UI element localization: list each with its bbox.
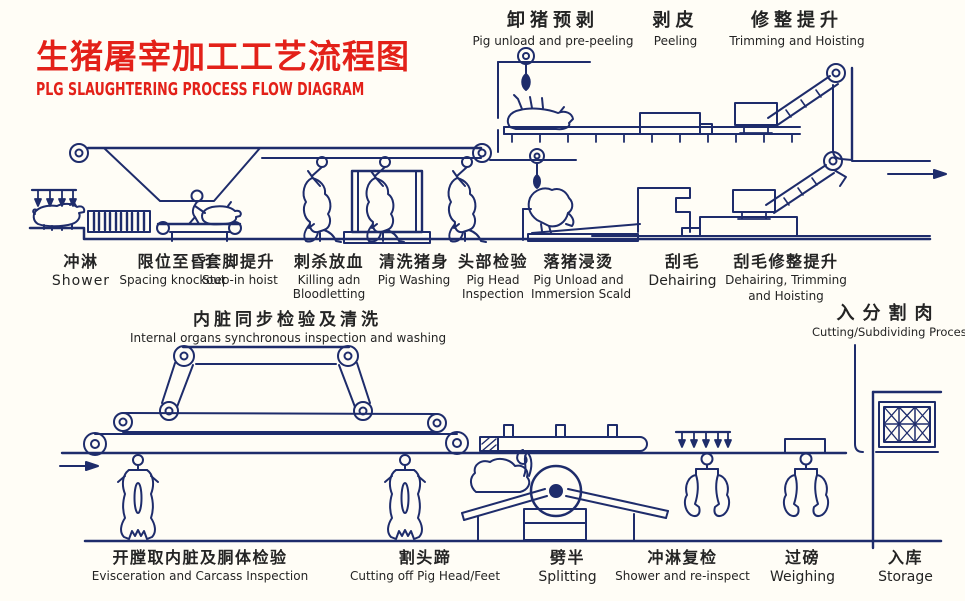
label-en: Cutting off Pig Head/Feet (330, 570, 520, 583)
label-head-inspection: 头部检验 Pig Head Inspection (448, 253, 538, 301)
hanging-pig-3 (449, 157, 486, 242)
label-pig-washing: 清洗猪身 Pig Washing (368, 253, 460, 288)
label-zh: 过磅 (745, 549, 860, 567)
scalding-tank (528, 188, 690, 241)
label-peeling: 剥皮 Peeling (628, 11, 723, 48)
label-zh: 落猪浸烫 (531, 253, 626, 271)
cutting-room-entry-line (855, 345, 863, 452)
title-chinese: 生猪屠宰加工工艺流程图 (36, 40, 492, 75)
eviscerated-carcass-2 (385, 455, 425, 539)
label-zh: 劈半 (510, 549, 625, 567)
hanging-pig-2 (367, 157, 404, 242)
hoisting-conveyor-lower (733, 152, 846, 219)
label-zh: 清洗猪身 (368, 253, 460, 271)
label-zh: 剥皮 (628, 11, 723, 32)
label-zh: 卸猪预剥 (448, 11, 658, 32)
label-zh: 头部检验 (448, 253, 538, 271)
hanging-pig-1 (304, 157, 341, 242)
label-en: Evisceration and Carcass Inspection (80, 570, 320, 583)
diagram-title: 生猪屠宰加工工艺流程图 PLG SLAUGHTERING PROCESS FLO… (36, 40, 492, 100)
bleeding-frame (344, 171, 430, 243)
label-zh: 刺杀放血 (283, 253, 375, 271)
pig-on-hoist-table (202, 202, 241, 224)
label-dehairing-trimming-hoisting: 刮毛修整提升 Dehairing, Trimming and Hoisting (725, 253, 847, 303)
label-splitting: 劈半 Splitting (510, 549, 625, 586)
process-flow-diagram: 生猪屠宰加工工艺流程图 PLG SLAUGHTERING PROCESS FLO… (0, 0, 965, 601)
peeling-machine-box (640, 113, 712, 134)
label-trimming-hoisting: 修整提升 Trimming and Hoisting (712, 11, 882, 48)
label-cutting-subdividing: 入分割肉 Cutting/Subdividing Process (812, 304, 965, 339)
label-immersion-scald: 落猪浸烫 Pig Unload and Immersion Scald (531, 253, 626, 301)
split-carcass-pair-1 (685, 454, 729, 517)
unload-hook (518, 48, 534, 90)
label-en: Trimming and Hoisting (712, 35, 882, 48)
label-en: Pig Washing (368, 274, 460, 287)
label-step-in-hoist: 套脚提升 Step-in hoist (192, 253, 288, 288)
split-carcass-pair-2 (784, 454, 828, 517)
label-en: Pig unload and pre-peeling (448, 35, 658, 48)
storage-room (873, 392, 941, 548)
label-en: Pig Unload and (531, 274, 626, 287)
label-zh: 入分割肉 (812, 304, 965, 325)
pig-on-pre-peel-table (508, 95, 573, 129)
label-shower: 冲淋 Shower (42, 253, 120, 290)
label-dehairing: 刮毛 Dehairing (640, 253, 725, 290)
label-organ-inspection: 内脏同步检验及清洗 Internal organs synchronous in… (130, 311, 445, 345)
label-en: Pig Head (448, 274, 538, 287)
label-cutting-head-feet: 割头蹄 Cutting off Pig Head/Feet (330, 549, 520, 584)
reinspect-shower-sprayer (676, 432, 731, 447)
label-zh: 割头蹄 (330, 549, 520, 567)
label-zh: 刮毛修整提升 (725, 253, 847, 271)
scald-hook (530, 149, 544, 188)
label-en2: Bloodletting (283, 288, 375, 301)
restrainer-pen-fence (88, 211, 150, 232)
label-zh: 修整提升 (712, 11, 882, 32)
label-zh: 冲淋 (42, 253, 120, 271)
head-feet-cutting-rail (480, 425, 647, 451)
pig-dropping-to-scald (523, 188, 640, 240)
label-en: Storage (848, 570, 963, 586)
label-en: Step-in hoist (192, 274, 288, 287)
label-storage: 入库 Storage (848, 549, 963, 586)
flow-arrow-bottom-left (60, 462, 98, 470)
label-evisceration: 开膛取内脏及胴体检验 Evisceration and Carcass Insp… (80, 549, 320, 584)
label-en2: Inspection (448, 288, 538, 301)
label-killing-bloodletting: 刺杀放血 Killing adn Bloodletting (283, 253, 375, 301)
stunning-line-rail (70, 144, 491, 201)
label-en: Dehairing, Trimming (725, 274, 847, 287)
label-en2: and Hoisting (725, 290, 847, 303)
label-zh: 入库 (848, 549, 963, 567)
label-shower-reinspect: 冲淋复检 Shower and re-inspect (610, 549, 755, 584)
label-en: Internal organs synchronous inspection a… (130, 332, 445, 345)
label-en: Shower and re-inspect (610, 570, 755, 583)
label-pig-unload-pre-peeling: 卸猪预剥 Pig unload and pre-peeling (448, 11, 658, 48)
label-en: Killing adn (283, 274, 375, 287)
label-zh: 开膛取内脏及胴体检验 (80, 549, 320, 567)
label-zh: 套脚提升 (192, 253, 288, 271)
splitting-saw (462, 466, 668, 541)
label-en: Shower (42, 274, 120, 290)
hoisting-conveyor-upper (735, 64, 845, 133)
label-en: Dehairing (640, 274, 725, 290)
step-in-hoist-station (157, 191, 241, 242)
organ-inspection-loop-conveyor (114, 346, 446, 432)
eviscerated-carcass-1 (118, 455, 158, 539)
label-en: Peeling (628, 35, 723, 48)
carcass-at-saw (471, 450, 531, 492)
transfer-column (833, 68, 930, 161)
pig-walking-icon (33, 201, 84, 230)
label-en: Cutting/Subdividing Process (812, 326, 965, 339)
weighing-scale (785, 439, 825, 453)
exit-arrow-top (888, 170, 946, 178)
label-en2: Immersion Scald (531, 288, 626, 301)
label-zh: 刮毛 (640, 253, 725, 271)
label-zh: 内脏同步检验及清洗 (130, 311, 445, 331)
label-weighing: 过磅 Weighing (745, 549, 860, 586)
title-english: PLG SLAUGHTERING PROCESS FLOW DIAGRAM (36, 80, 364, 100)
label-zh: 冲淋复检 (610, 549, 755, 567)
label-en: Weighing (745, 570, 860, 586)
label-en: Splitting (510, 570, 625, 586)
